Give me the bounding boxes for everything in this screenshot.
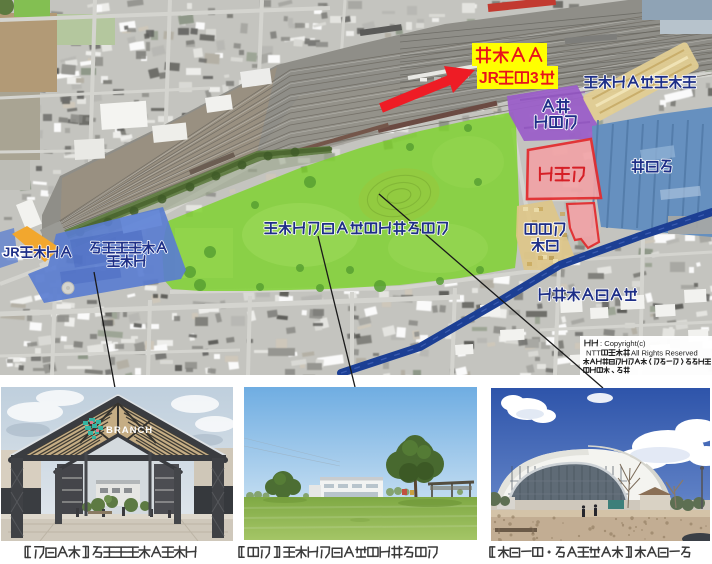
svg-text:NTT: NTT <box>586 349 601 358</box>
svg-text:JR: JR <box>3 245 20 260</box>
svg-text:: Copyright(c): : Copyright(c) <box>600 339 646 348</box>
svg-text:All Rights Reserved: All Rights Reserved <box>631 349 698 358</box>
svg-text:3: 3 <box>530 70 539 87</box>
svg-text:BRANCH: BRANCH <box>106 425 153 436</box>
svg-text:JR: JR <box>479 70 499 87</box>
